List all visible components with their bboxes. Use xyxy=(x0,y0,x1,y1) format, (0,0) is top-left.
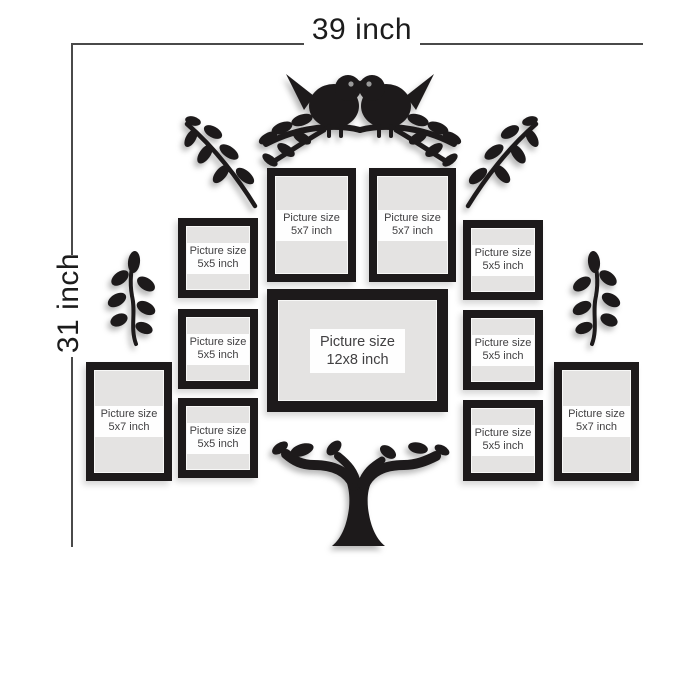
height-dimension-label: 31 inch xyxy=(52,253,86,353)
frame-left-top-5x5: Picture size 5x5 inch xyxy=(178,218,258,298)
frame-bottom-right-5x7: Picture size 5x7 inch xyxy=(554,362,639,481)
frame-mat: Picture size 5x5 inch xyxy=(186,226,250,290)
frame-mat: Picture size 5x5 inch xyxy=(471,318,535,382)
label-line2: 5x5 inch xyxy=(472,260,534,273)
width-dimension-line-left xyxy=(71,43,304,45)
label-line1: Picture size xyxy=(187,245,249,258)
label-line2: 5x5 inch xyxy=(187,438,249,451)
picture-size-label: Picture size 12x8 inch xyxy=(310,329,405,373)
leaf-sprig-right-icon xyxy=(572,254,624,346)
label-line1: Picture size xyxy=(95,408,163,421)
frame-right-top-5x5: Picture size 5x5 inch xyxy=(463,220,543,300)
label-line2: 5x5 inch xyxy=(472,440,534,453)
label-line2: 5x7 inch xyxy=(95,421,163,434)
label-line2: 5x5 inch xyxy=(187,258,249,271)
frame-mat: Picture size 5x5 inch xyxy=(471,408,535,473)
height-dimension-line-bottom xyxy=(71,357,73,547)
picture-size-label: Picture size 5x7 inch xyxy=(378,210,447,241)
label-line1: Picture size xyxy=(187,336,249,349)
picture-size-label: Picture size 5x5 inch xyxy=(472,335,534,366)
frame-mat: Picture size 5x5 inch xyxy=(186,317,250,381)
picture-size-label: Picture size 5x5 inch xyxy=(472,425,534,456)
frame-top-center-right-5x7: Picture size 5x7 inch xyxy=(369,168,456,282)
height-dimension-line-top xyxy=(71,43,73,255)
picture-size-label: Picture size 5x7 inch xyxy=(276,210,347,241)
width-dimension-line-right xyxy=(420,43,643,45)
tree-trunk-icon xyxy=(268,424,452,546)
label-line2: 5x7 inch xyxy=(276,225,347,238)
picture-size-label: Picture size 5x7 inch xyxy=(563,406,630,437)
frame-mat: Picture size 5x7 inch xyxy=(562,370,631,473)
label-line1: Picture size xyxy=(276,212,347,225)
frame-mat: Picture size 5x5 inch xyxy=(471,228,535,292)
frame-mat: Picture size 5x7 inch xyxy=(377,176,448,274)
label-line2: 5x5 inch xyxy=(187,349,249,362)
frame-center-12x8: Picture size 12x8 inch xyxy=(267,289,448,412)
picture-size-label: Picture size 5x5 inch xyxy=(187,423,249,454)
label-line2: 12x8 inch xyxy=(320,351,395,369)
frame-left-bottom-5x5: Picture size 5x5 inch xyxy=(178,398,258,478)
frame-top-center-left-5x7: Picture size 5x7 inch xyxy=(267,168,356,282)
corner-branch-right-icon xyxy=(464,116,540,208)
frame-mat: Picture size 12x8 inch xyxy=(278,300,437,401)
label-line1: Picture size xyxy=(472,427,534,440)
label-line1: Picture size xyxy=(187,425,249,438)
picture-size-label: Picture size 5x7 inch xyxy=(95,406,163,437)
frame-mat: Picture size 5x7 inch xyxy=(275,176,348,274)
leaf-sprig-left-icon xyxy=(104,254,156,346)
frame-bottom-left-5x7: Picture size 5x7 inch xyxy=(86,362,172,481)
label-line1: Picture size xyxy=(320,333,395,351)
frame-mat: Picture size 5x5 inch xyxy=(186,406,250,470)
frame-left-middle-5x5: Picture size 5x5 inch xyxy=(178,309,258,389)
width-dimension-label: 39 inch xyxy=(312,13,412,47)
label-line1: Picture size xyxy=(378,212,447,225)
frame-mat: Picture size 5x7 inch xyxy=(94,370,164,473)
frame-right-middle-5x5: Picture size 5x5 inch xyxy=(463,310,543,390)
picture-size-label: Picture size 5x5 inch xyxy=(187,334,249,365)
picture-size-label: Picture size 5x5 inch xyxy=(472,245,534,276)
label-line2: 5x7 inch xyxy=(563,421,630,434)
label-line1: Picture size xyxy=(472,247,534,260)
product-diagram-canvas: 39 inch 31 inch Picture size 5x7 inch Pi… xyxy=(0,0,700,700)
frame-right-bottom-5x5: Picture size 5x5 inch xyxy=(463,400,543,481)
picture-size-label: Picture size 5x5 inch xyxy=(187,243,249,274)
label-line1: Picture size xyxy=(472,337,534,350)
label-line2: 5x7 inch xyxy=(378,225,447,238)
label-line1: Picture size xyxy=(563,408,630,421)
label-line2: 5x5 inch xyxy=(472,350,534,363)
love-birds-branch-icon xyxy=(256,68,464,166)
corner-branch-left-icon xyxy=(183,116,259,208)
